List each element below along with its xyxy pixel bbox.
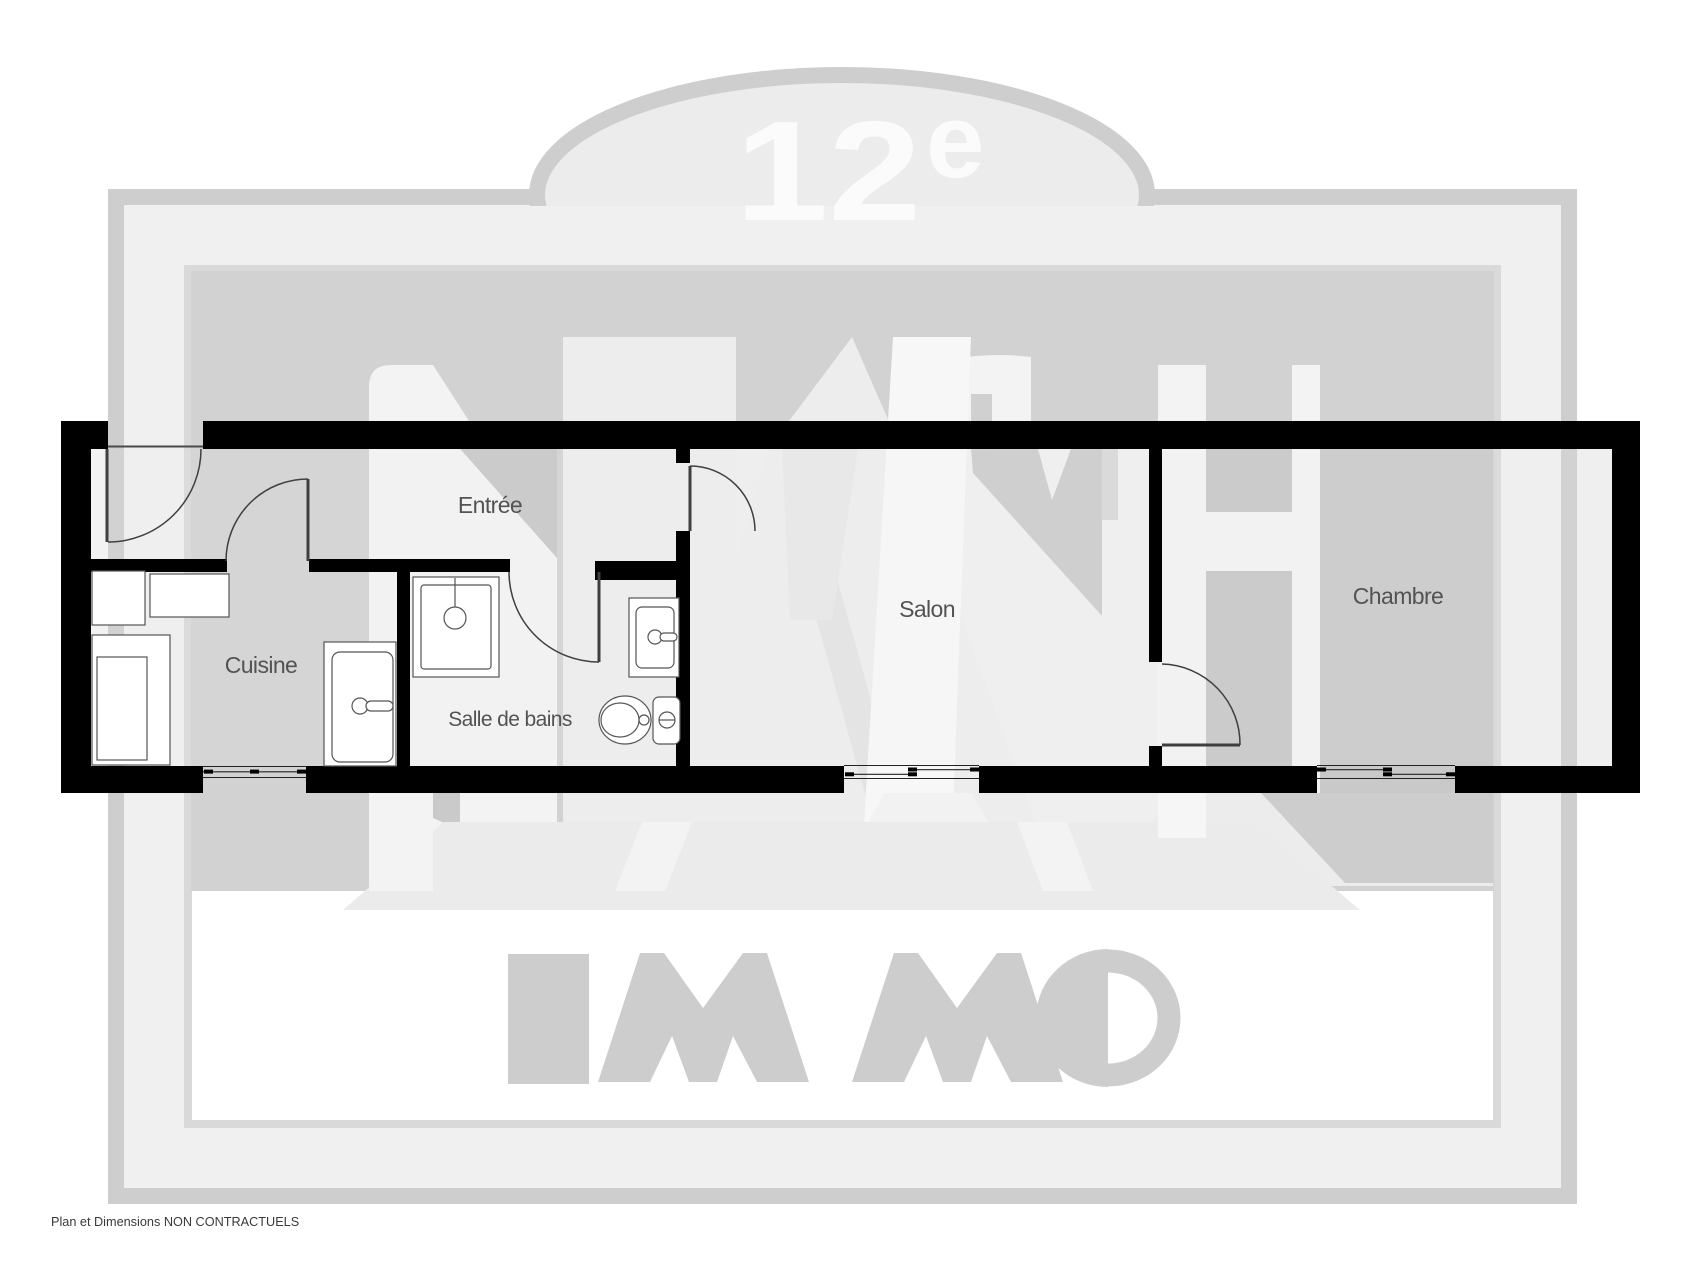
svg-text:Salon: Salon <box>899 596 955 622</box>
svg-text:12: 12 <box>735 91 921 250</box>
svg-text:Cuisine: Cuisine <box>225 652 298 678</box>
svg-text:Plan et Dimensions NON CONTRAC: Plan et Dimensions NON CONTRACTUELS <box>51 1215 299 1229</box>
svg-text:e: e <box>926 83 984 200</box>
svg-text:Salle de bains: Salle de bains <box>448 708 572 731</box>
svg-text:Entrée: Entrée <box>458 492 522 518</box>
svg-text:Chambre: Chambre <box>1353 583 1443 609</box>
